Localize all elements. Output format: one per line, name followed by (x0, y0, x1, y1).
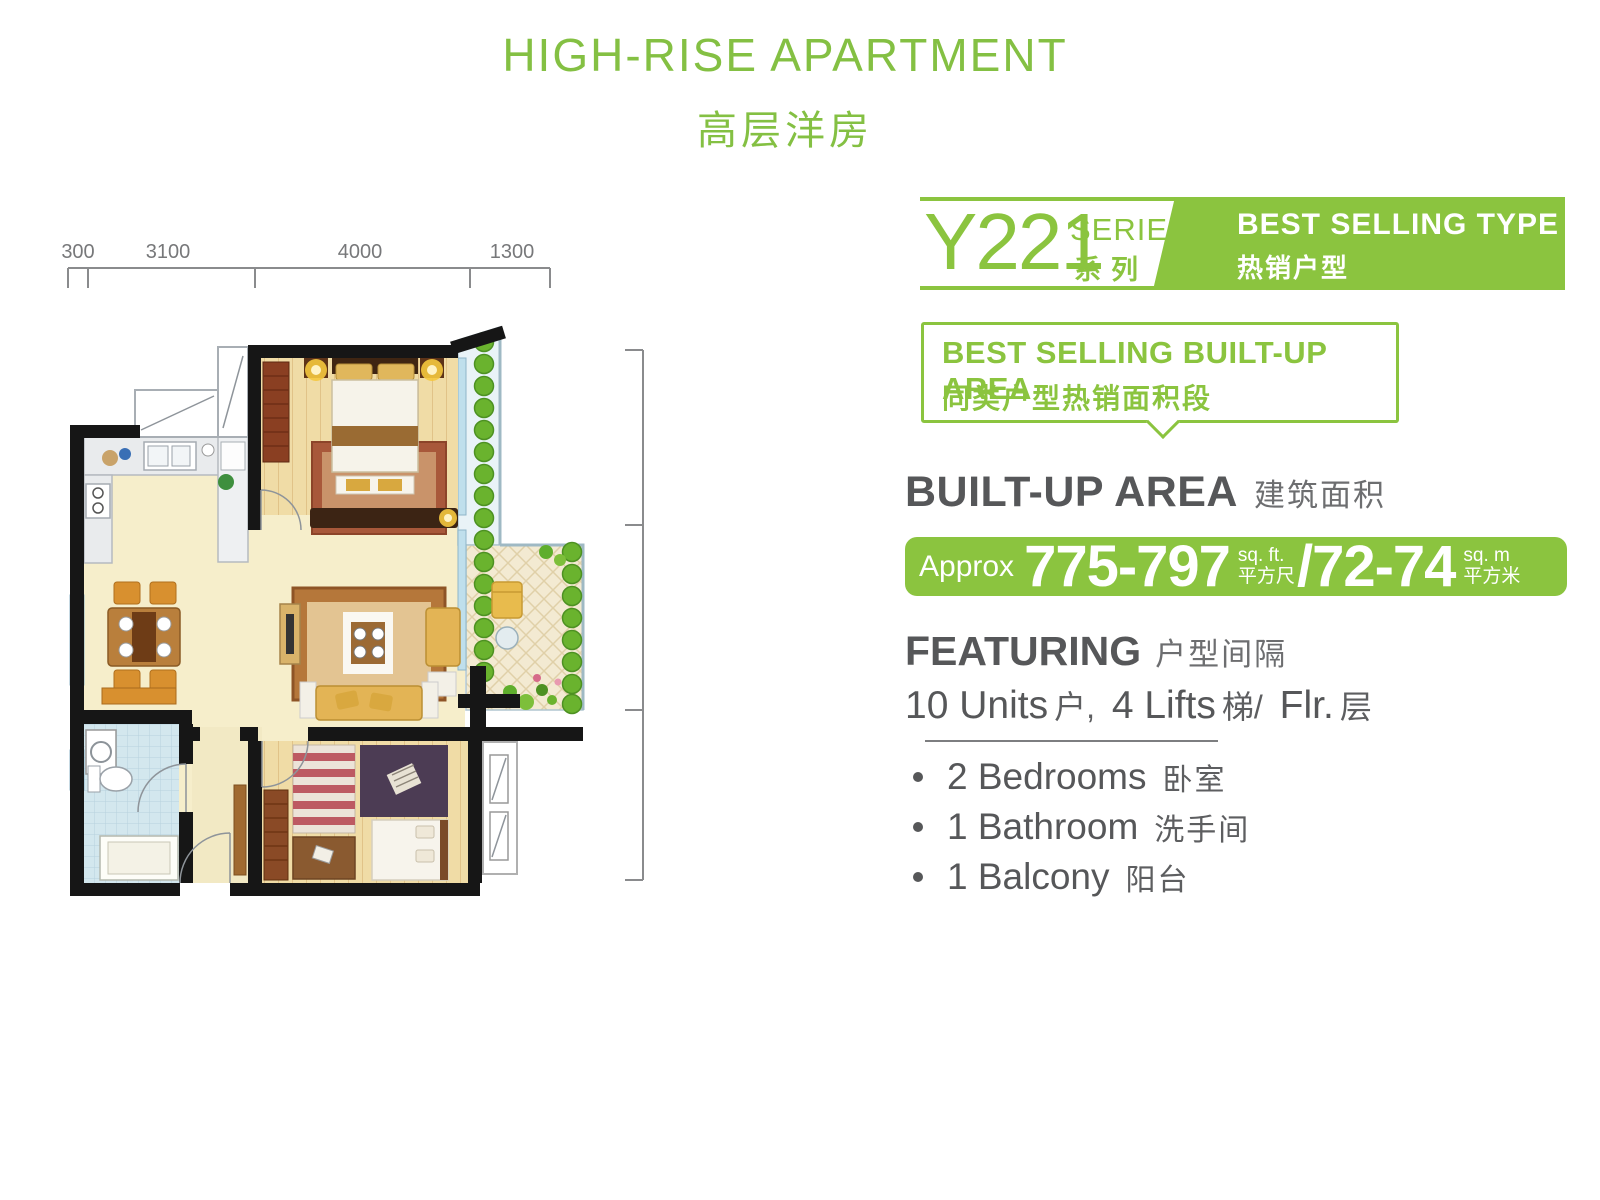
feature-en: 1 Balcony (947, 856, 1110, 898)
wardrobe (263, 362, 289, 462)
sqft-value: 775-797 (1024, 538, 1230, 596)
feature-zh: 阳台 (1126, 855, 1190, 899)
dimension-top (68, 268, 550, 288)
bedroom2-windows (477, 742, 517, 874)
banner-text-en: BEST SELLING TYPE (1237, 208, 1559, 242)
tv-console (310, 508, 458, 528)
slash: / (1297, 538, 1312, 596)
feature-list: 2 Bedrooms 卧室 1 Bathroom 洗手间 1 Balcony 阳… (905, 752, 1250, 902)
sofa (316, 686, 422, 720)
banner-text-zh: 热销户型 (1237, 248, 1349, 285)
flr-label: Flr. (1280, 684, 1334, 727)
toilet (100, 767, 132, 791)
best-selling-area-callout: BEST SELLING BUILT-UP AREA 同类户型热销面积段 (921, 322, 1399, 423)
day-bed (372, 820, 448, 880)
bua-heading-zh: 建筑面积 (1254, 478, 1386, 513)
page-title-zh: 高层洋房 (0, 98, 1570, 156)
units-count: 10 Units (905, 684, 1048, 727)
features-divider (925, 740, 1218, 742)
featuring-heading: FEATURING户型间隔 (905, 628, 1287, 675)
feature-item-balcony: 1 Balcony 阳台 (905, 852, 1250, 902)
series-label-zh: 系列 (1074, 248, 1148, 287)
single-bed (293, 745, 355, 833)
entry-hall (234, 785, 246, 875)
feature-item-bedrooms: 2 Bedrooms 卧室 (905, 752, 1250, 802)
dim-label: 1300 (490, 241, 535, 263)
bullet-icon (913, 822, 923, 832)
featuring-heading-zh: 户型间隔 (1155, 637, 1287, 672)
feature-item-bathroom: 1 Bathroom 洗手间 (905, 802, 1250, 852)
flr-zh: 层 (1340, 689, 1372, 725)
sqm-unit-en: sq. m (1463, 546, 1520, 567)
plant-pot (218, 474, 234, 490)
page-title-en: HIGH-RISE APARTMENT (0, 28, 1570, 82)
balcony-table (496, 627, 518, 649)
bullet-icon (913, 872, 923, 882)
sqft-unit-en: sq. ft. (1238, 546, 1295, 567)
shoe-cabinet (234, 785, 246, 875)
sqm-unit-zh: 平方米 (1463, 567, 1520, 588)
feature-zh: 洗手间 (1154, 805, 1250, 849)
dimension-right (625, 350, 643, 880)
lounge-chair (492, 582, 522, 618)
bullet-icon (913, 772, 923, 782)
callout-line2: 同类户型热销面积段 (942, 377, 1212, 417)
bathroom (70, 724, 179, 883)
feature-en: 1 Bathroom (947, 806, 1138, 848)
feature-zh: 卧室 (1163, 755, 1227, 799)
ac-ledge (135, 347, 248, 437)
dim-label: 3100 (146, 241, 191, 263)
console-table (102, 688, 176, 704)
units-lifts-line: 10 Units户, 4 Lifts梯/ Flr.层 (905, 682, 1378, 728)
units-zh: 户, (1054, 689, 1095, 725)
dimension-top-labels: 300 3100 4000 1300 (61, 241, 534, 263)
feature-en: 2 Bedrooms (947, 756, 1147, 798)
sqft-unit-zh: 平方尺 (1238, 567, 1295, 588)
built-up-area-heading: BUILT-UP AREA建筑面积 (905, 468, 1386, 517)
living-room (280, 588, 460, 720)
bua-heading-en: BUILT-UP AREA (905, 468, 1238, 516)
sqft-unit: sq. ft. 平方尺 (1238, 546, 1295, 588)
dim-label: 4000 (338, 241, 383, 263)
sqm-value: 72-74 (1312, 538, 1455, 596)
area-banner: Approx 775-797 sq. ft. 平方尺 / 72-74 sq. m… (905, 537, 1567, 596)
sqm-unit: sq. m 平方米 (1463, 546, 1520, 588)
page-title: HIGH-RISE APARTMENT 高层洋房 (0, 28, 1570, 156)
balcony (458, 327, 583, 714)
master-bedroom (261, 358, 458, 534)
armchair (426, 608, 460, 666)
second-bedroom (262, 741, 468, 883)
approx-label: Approx (919, 550, 1014, 584)
floor-plan: 300 3100 4000 1300 3400 3600 3000 (40, 230, 680, 920)
best-selling-type-banner: BEST SELLING TYPE 热销户型 (1153, 197, 1565, 290)
lifts-zh: 梯/ (1222, 689, 1263, 725)
dim-label: 300 (61, 241, 94, 263)
featuring-heading-en: FEATURING (905, 628, 1141, 674)
lifts-count: 4 Lifts (1112, 684, 1216, 727)
